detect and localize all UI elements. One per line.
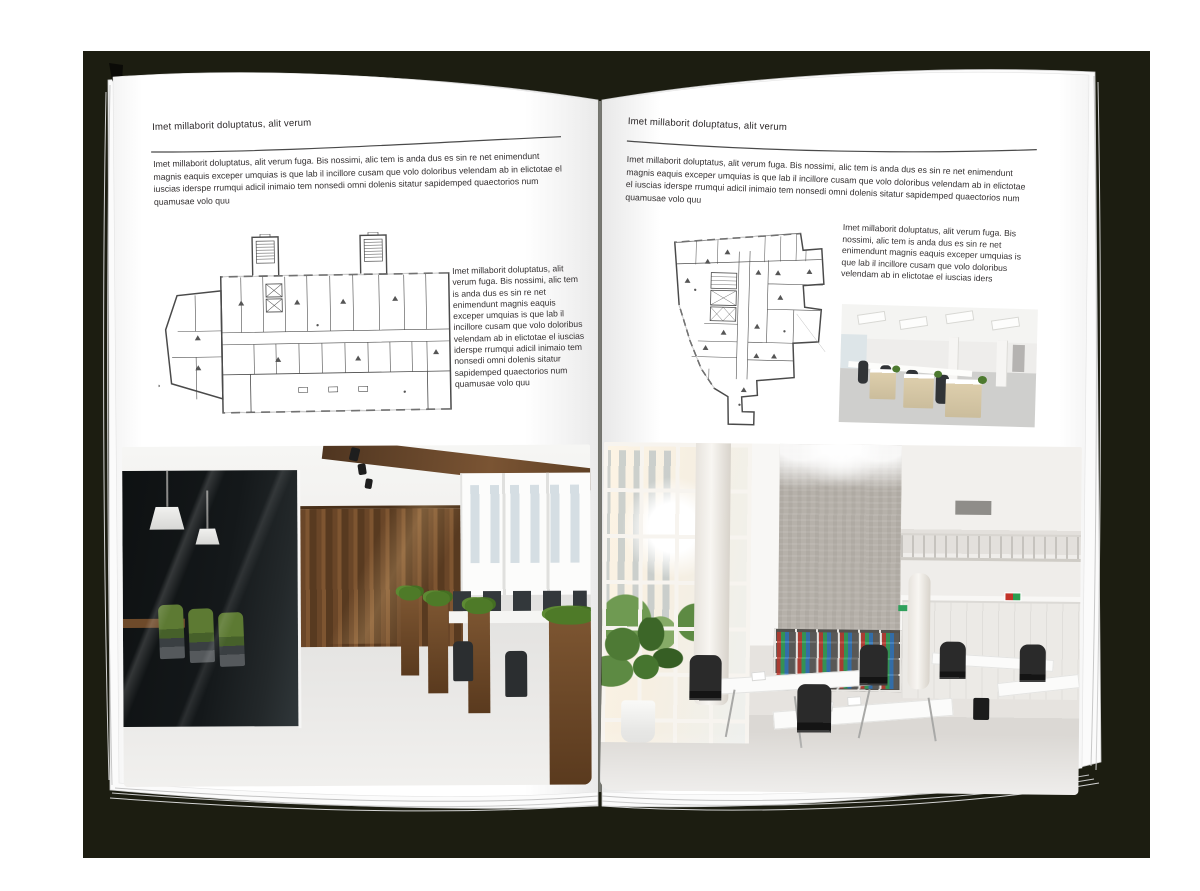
safety-signs bbox=[1004, 592, 1021, 601]
planter-grass bbox=[545, 607, 592, 625]
ceiling-light-panel bbox=[945, 310, 974, 324]
black-office-chair bbox=[505, 651, 527, 697]
black-office-chair bbox=[858, 360, 869, 383]
track-spotlight bbox=[364, 478, 373, 489]
small-plant bbox=[892, 365, 900, 372]
wood-cabinet bbox=[869, 369, 896, 400]
pendant-lamp-cord bbox=[166, 471, 168, 507]
planter-grass bbox=[465, 598, 493, 614]
black-office-chair bbox=[1019, 644, 1046, 692]
book-mockup-canvas: Imet millaborit doluptatus, alit verum I… bbox=[0, 0, 1200, 891]
ceiling-light-panel bbox=[991, 317, 1020, 331]
black-office-chair bbox=[453, 641, 473, 681]
glass-meeting-room bbox=[122, 470, 298, 727]
green-office-chair bbox=[218, 612, 245, 667]
wooden-planter bbox=[401, 597, 419, 675]
black-office-chair bbox=[689, 655, 722, 713]
white-column bbox=[948, 337, 958, 385]
round-column bbox=[907, 573, 930, 689]
left-floor-plan-drawing bbox=[156, 231, 461, 434]
white-column bbox=[996, 340, 1007, 386]
green-office-chair bbox=[158, 604, 185, 659]
wood-cabinet bbox=[945, 379, 982, 418]
right-floor-plan-drawing bbox=[643, 220, 838, 431]
left-side-text: Imet millaborit doluptatus, alit verum f… bbox=[452, 263, 587, 390]
right-page-photo-office-hall bbox=[600, 442, 1082, 795]
black-bin bbox=[973, 698, 989, 720]
door bbox=[1012, 345, 1025, 372]
planter-grass bbox=[399, 586, 421, 600]
floor-sheen bbox=[600, 730, 1079, 795]
mezzanine bbox=[900, 445, 1082, 597]
track-spotlight bbox=[357, 463, 367, 475]
wall-spotlights bbox=[779, 444, 902, 507]
left-page-intro: Imet millaborit doluptatus, alit verum f… bbox=[153, 149, 570, 208]
wood-cabinet bbox=[903, 374, 934, 409]
papers-on-desk bbox=[847, 696, 862, 706]
wooden-planter-large bbox=[549, 621, 592, 785]
planter-grass bbox=[426, 591, 450, 606]
right-page-photo-open-office bbox=[839, 304, 1038, 427]
window-mullions bbox=[462, 473, 591, 596]
black-office-chair bbox=[859, 645, 888, 697]
vent-grille bbox=[955, 501, 991, 515]
ceiling-light-panel bbox=[899, 316, 928, 330]
right-side-text: Imet millaborit doluptatus, alit verum f… bbox=[841, 222, 1035, 286]
mezzanine-railing bbox=[901, 533, 1081, 562]
pendant-lamp-cord bbox=[206, 491, 208, 529]
black-office-chair bbox=[939, 642, 966, 690]
papers-on-desk bbox=[751, 671, 766, 681]
wooden-planter bbox=[428, 603, 448, 693]
left-page-photo-office-darkwood bbox=[122, 445, 592, 787]
ceiling-light-panel bbox=[857, 311, 886, 325]
small-plant bbox=[978, 376, 987, 384]
green-office-chair bbox=[188, 608, 215, 663]
potted-plant-leaves bbox=[600, 617, 689, 708]
exit-sign bbox=[898, 605, 907, 611]
